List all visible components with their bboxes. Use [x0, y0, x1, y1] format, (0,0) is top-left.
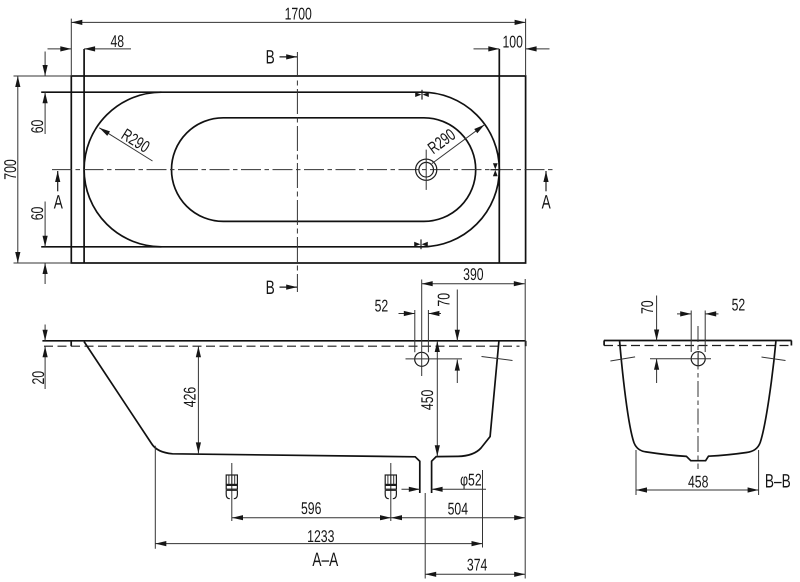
svg-text:20: 20 [29, 371, 48, 385]
svg-text:374: 374 [467, 556, 487, 575]
svg-text:48: 48 [110, 32, 124, 51]
svg-text:R290: R290 [424, 125, 459, 158]
svg-text:A: A [54, 191, 63, 213]
svg-text:φ52: φ52 [460, 470, 482, 489]
svg-text:458: 458 [688, 472, 708, 491]
svg-text:700: 700 [1, 159, 20, 179]
svg-text:70: 70 [638, 300, 657, 314]
svg-text:60: 60 [28, 207, 47, 221]
svg-text:60: 60 [28, 120, 47, 134]
svg-text:450: 450 [418, 390, 437, 410]
svg-text:52: 52 [732, 295, 746, 314]
svg-text:70: 70 [435, 293, 454, 307]
svg-text:B: B [266, 47, 275, 69]
svg-text:596: 596 [301, 499, 321, 518]
svg-text:B–B: B–B [765, 471, 791, 493]
svg-text:A: A [542, 191, 551, 213]
svg-text:52: 52 [375, 296, 389, 315]
svg-text:1233: 1233 [307, 527, 334, 546]
svg-text:A–A: A–A [312, 549, 338, 571]
svg-text:R290: R290 [118, 125, 153, 157]
svg-text:1700: 1700 [285, 5, 312, 24]
svg-text:390: 390 [463, 265, 483, 284]
svg-text:B: B [266, 277, 275, 299]
svg-text:426: 426 [180, 387, 199, 407]
svg-text:100: 100 [502, 32, 522, 51]
svg-text:504: 504 [448, 500, 468, 519]
